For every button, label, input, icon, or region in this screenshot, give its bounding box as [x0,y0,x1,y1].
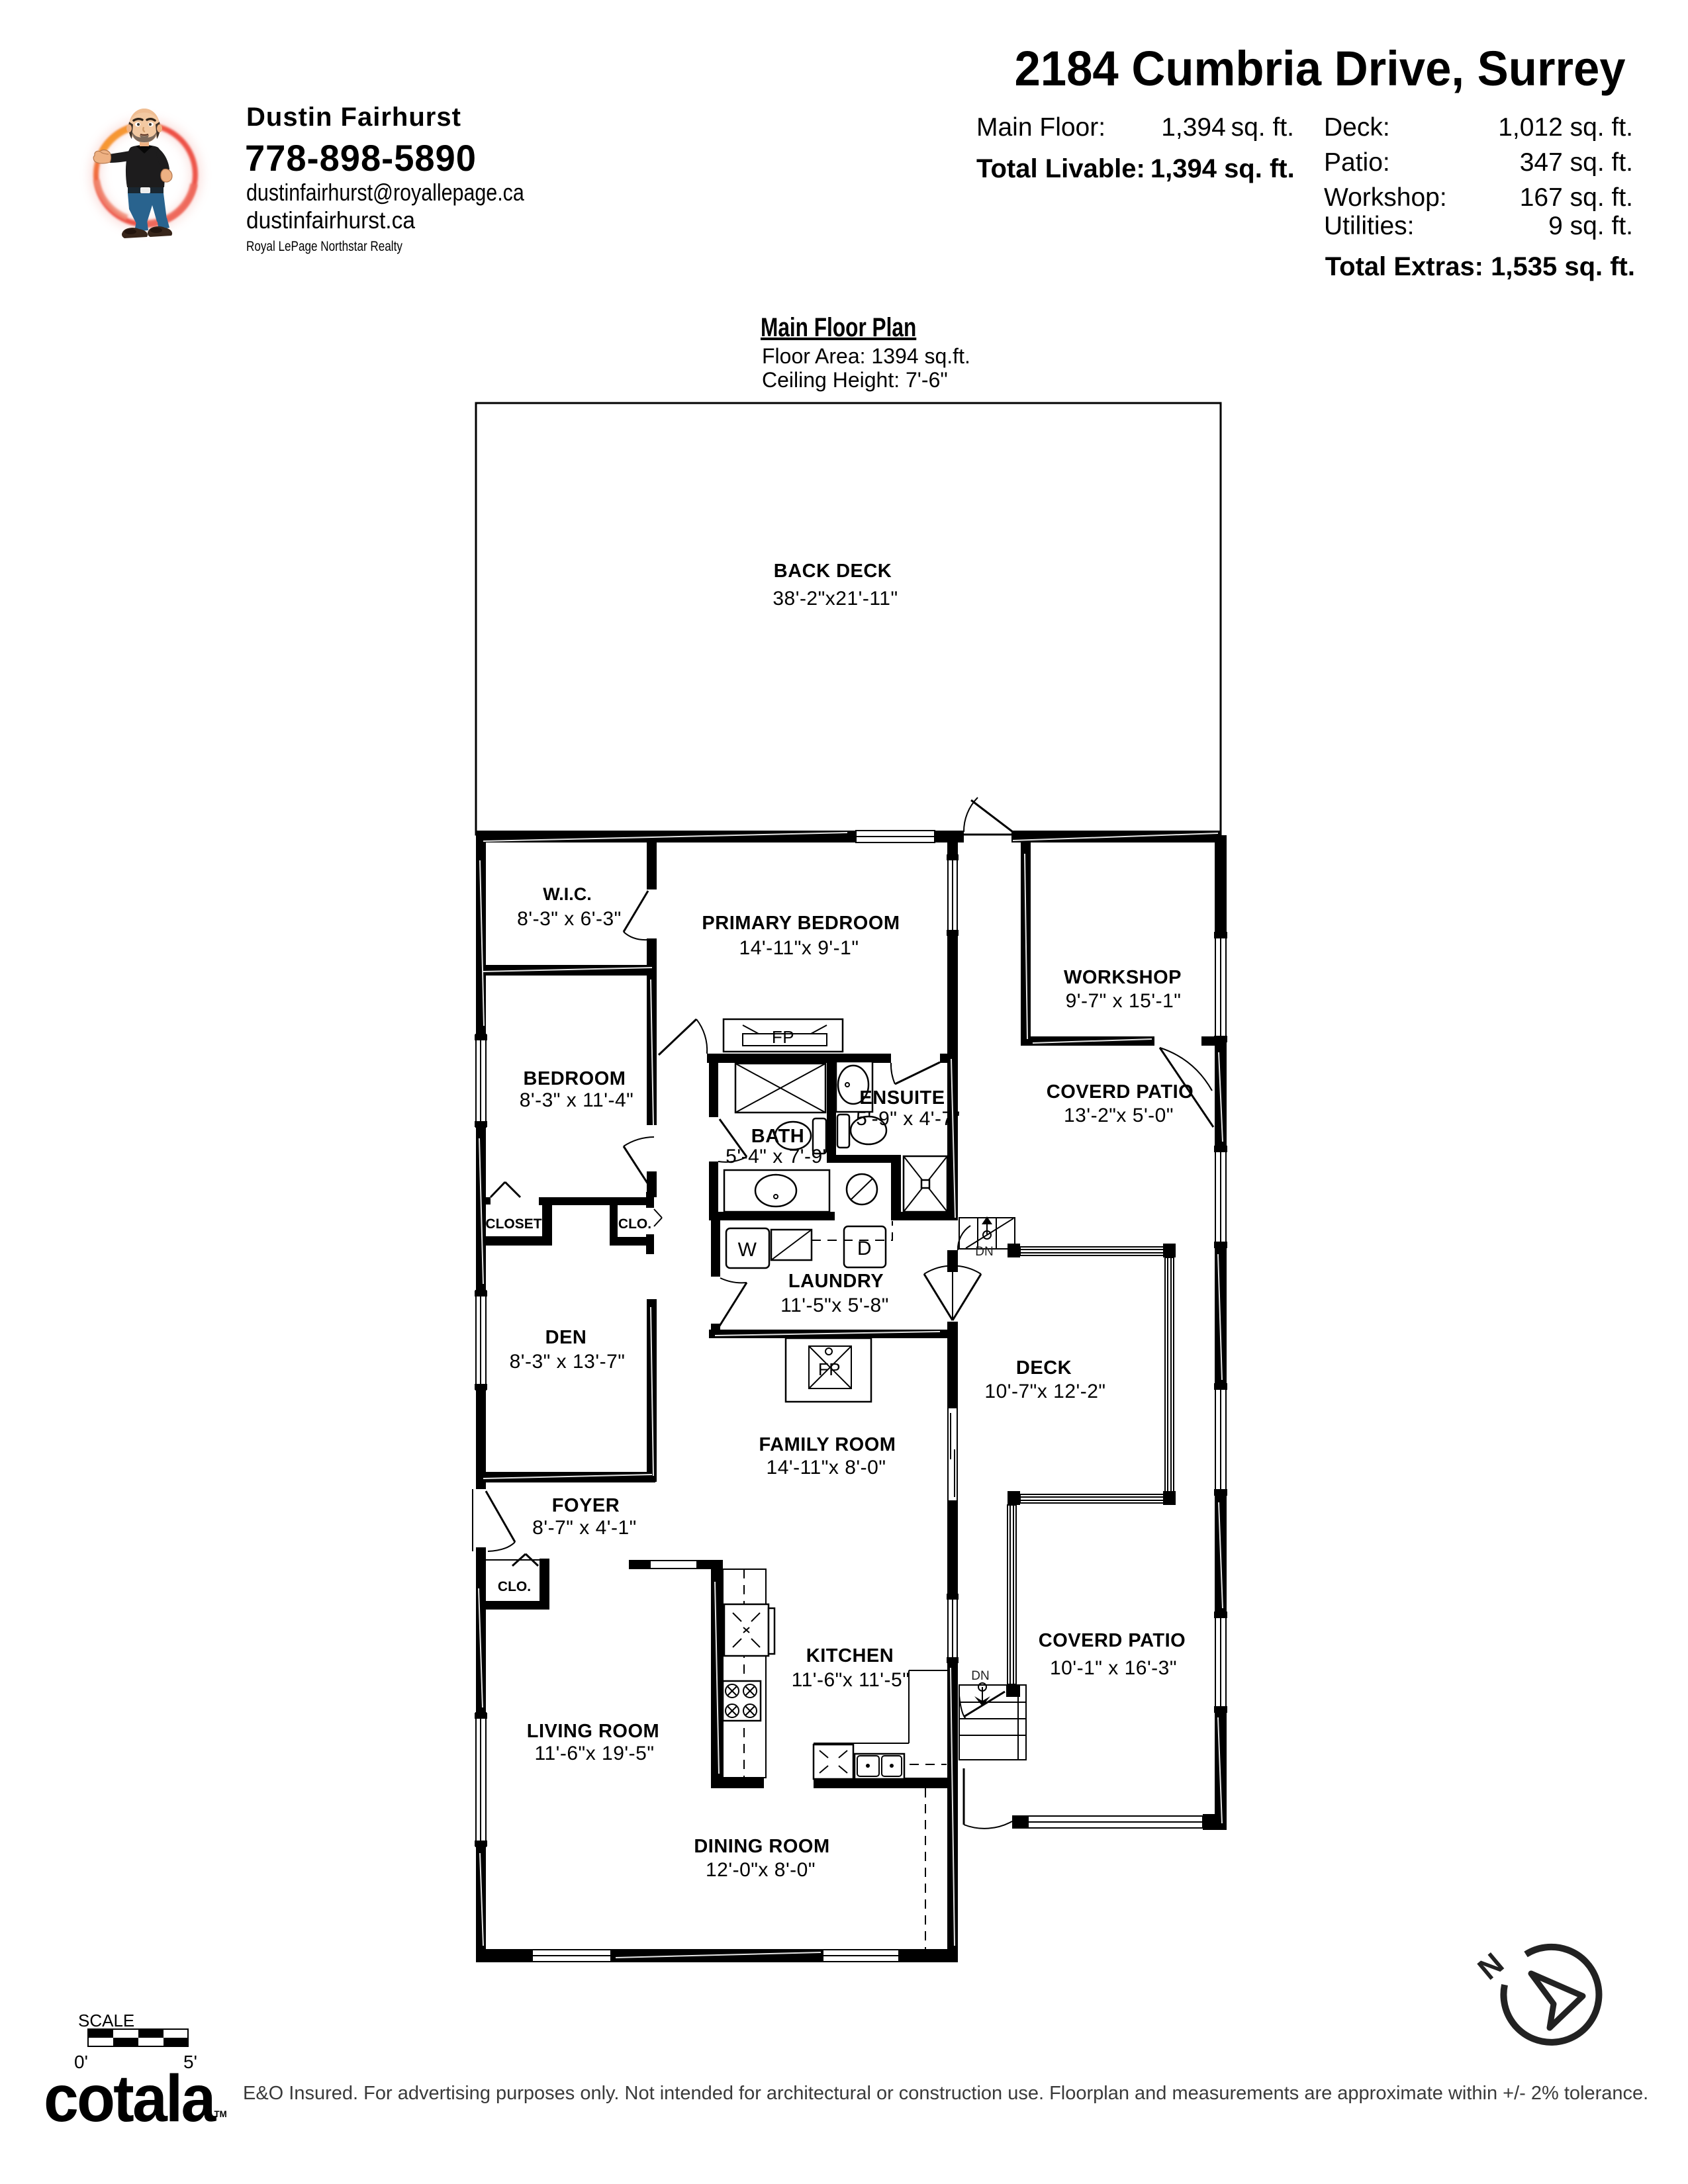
svg-text:LIVING ROOM: LIVING ROOM [527,1721,659,1742]
svg-text:FOYER: FOYER [552,1495,620,1516]
svg-text:LAUNDRY: LAUNDRY [788,1271,884,1292]
svg-text:5'-4" x 7'-9": 5'-4" x 7'-9" [726,1146,830,1167]
svg-text:W.I.C.: W.I.C. [543,884,592,904]
svg-text:DINING ROOM: DINING ROOM [694,1836,829,1857]
svg-text:12'-0"x 8'-0": 12'-0"x 8'-0" [706,1859,816,1881]
svg-text:DN: DN [975,1245,993,1259]
svg-text:14'-11"x 8'-0": 14'-11"x 8'-0" [767,1457,886,1479]
svg-text:COVERD PATIO: COVERD PATIO [1047,1081,1194,1103]
svg-text:14'-11"x 9'-1": 14'-11"x 9'-1" [739,937,859,959]
svg-text:8'-3" x 6'-3": 8'-3" x 6'-3" [517,908,622,930]
svg-text:DEN: DEN [545,1327,587,1348]
svg-text:BACK DECK: BACK DECK [774,561,892,582]
svg-text:BEDROOM: BEDROOM [524,1068,626,1089]
svg-text:10'-1" x 16'-3": 10'-1" x 16'-3" [1050,1657,1177,1679]
svg-text:5': 5' [183,2052,197,2072]
svg-text:DECK: DECK [1016,1357,1072,1379]
svg-text:CLO.: CLO. [498,1579,531,1594]
svg-text:FAMILY ROOM: FAMILY ROOM [759,1434,896,1455]
svg-text:SCALE: SCALE [78,2011,134,2030]
svg-text:KITCHEN: KITCHEN [806,1645,894,1666]
svg-text:FP: FP [818,1359,841,1379]
svg-text:ENSUITE: ENSUITE [859,1087,945,1109]
svg-text:0': 0' [74,2052,88,2072]
svg-text:FP: FP [772,1027,794,1047]
svg-text:CLO.: CLO. [618,1216,651,1232]
svg-text:8'-3" x 13'-7": 8'-3" x 13'-7" [510,1351,626,1373]
svg-text:COVERD PATIO: COVERD PATIO [1039,1630,1186,1651]
svg-text:CLOSET: CLOSET [485,1216,541,1232]
svg-text:8'-7" x 4'-1": 8'-7" x 4'-1" [532,1517,637,1539]
svg-text:BATH: BATH [751,1126,804,1147]
svg-text:N: N [1471,1946,1510,1986]
svg-text:9'-7" x 15'-1": 9'-7" x 15'-1" [1066,990,1182,1012]
svg-text:38'-2"x21'-11": 38'-2"x21'-11" [773,588,898,610]
svg-text:10'-7"x 12'-2": 10'-7"x 12'-2" [984,1381,1105,1402]
svg-text:PRIMARY BEDROOM: PRIMARY BEDROOM [702,913,900,934]
svg-text:5'-9" x 4'-7": 5'-9" x 4'-7" [856,1108,961,1130]
svg-text:11'-6"x 19'-5": 11'-6"x 19'-5" [535,1743,655,1764]
svg-text:11'-6"x 11'-5": 11'-6"x 11'-5" [792,1669,910,1691]
svg-text:13'-2"x 5'-0": 13'-2"x 5'-0" [1064,1105,1174,1126]
svg-text:11'-5"x 5'-8": 11'-5"x 5'-8" [780,1295,889,1316]
svg-text:8'-3" x 11'-4": 8'-3" x 11'-4" [520,1089,634,1111]
svg-text:DN: DN [971,1669,989,1683]
svg-text:WORKSHOP: WORKSHOP [1064,967,1182,988]
svg-text:W: W [738,1239,757,1261]
